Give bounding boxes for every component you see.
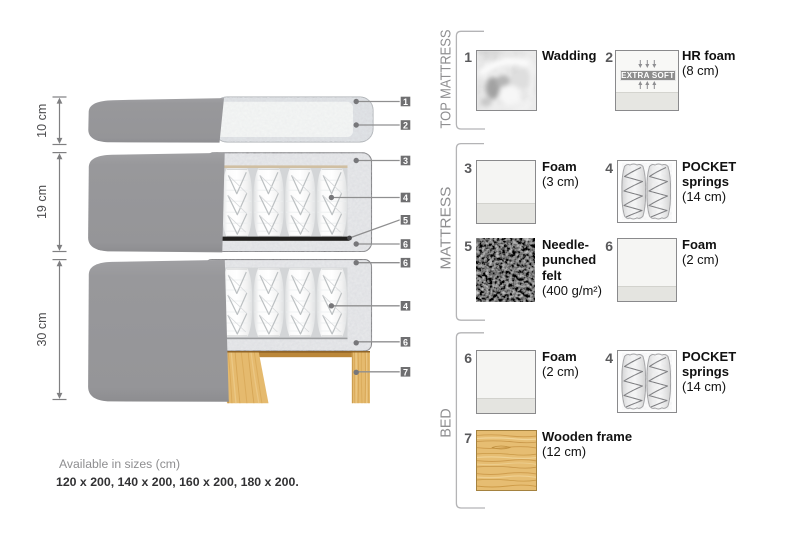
svg-text:19 cm: 19 cm	[35, 185, 49, 219]
svg-text:2: 2	[403, 121, 408, 131]
svg-text:1: 1	[403, 97, 408, 107]
svg-text:10 cm: 10 cm	[35, 104, 49, 138]
svg-text:6: 6	[403, 337, 408, 347]
svg-text:5: 5	[403, 215, 408, 225]
svg-text:3: 3	[403, 156, 408, 166]
svg-text:4: 4	[403, 301, 408, 311]
svg-text:6: 6	[403, 240, 408, 250]
svg-text:30 cm: 30 cm	[35, 312, 49, 346]
svg-text:7: 7	[403, 367, 408, 377]
svg-text:4: 4	[403, 193, 408, 203]
svg-text:6: 6	[403, 258, 408, 268]
